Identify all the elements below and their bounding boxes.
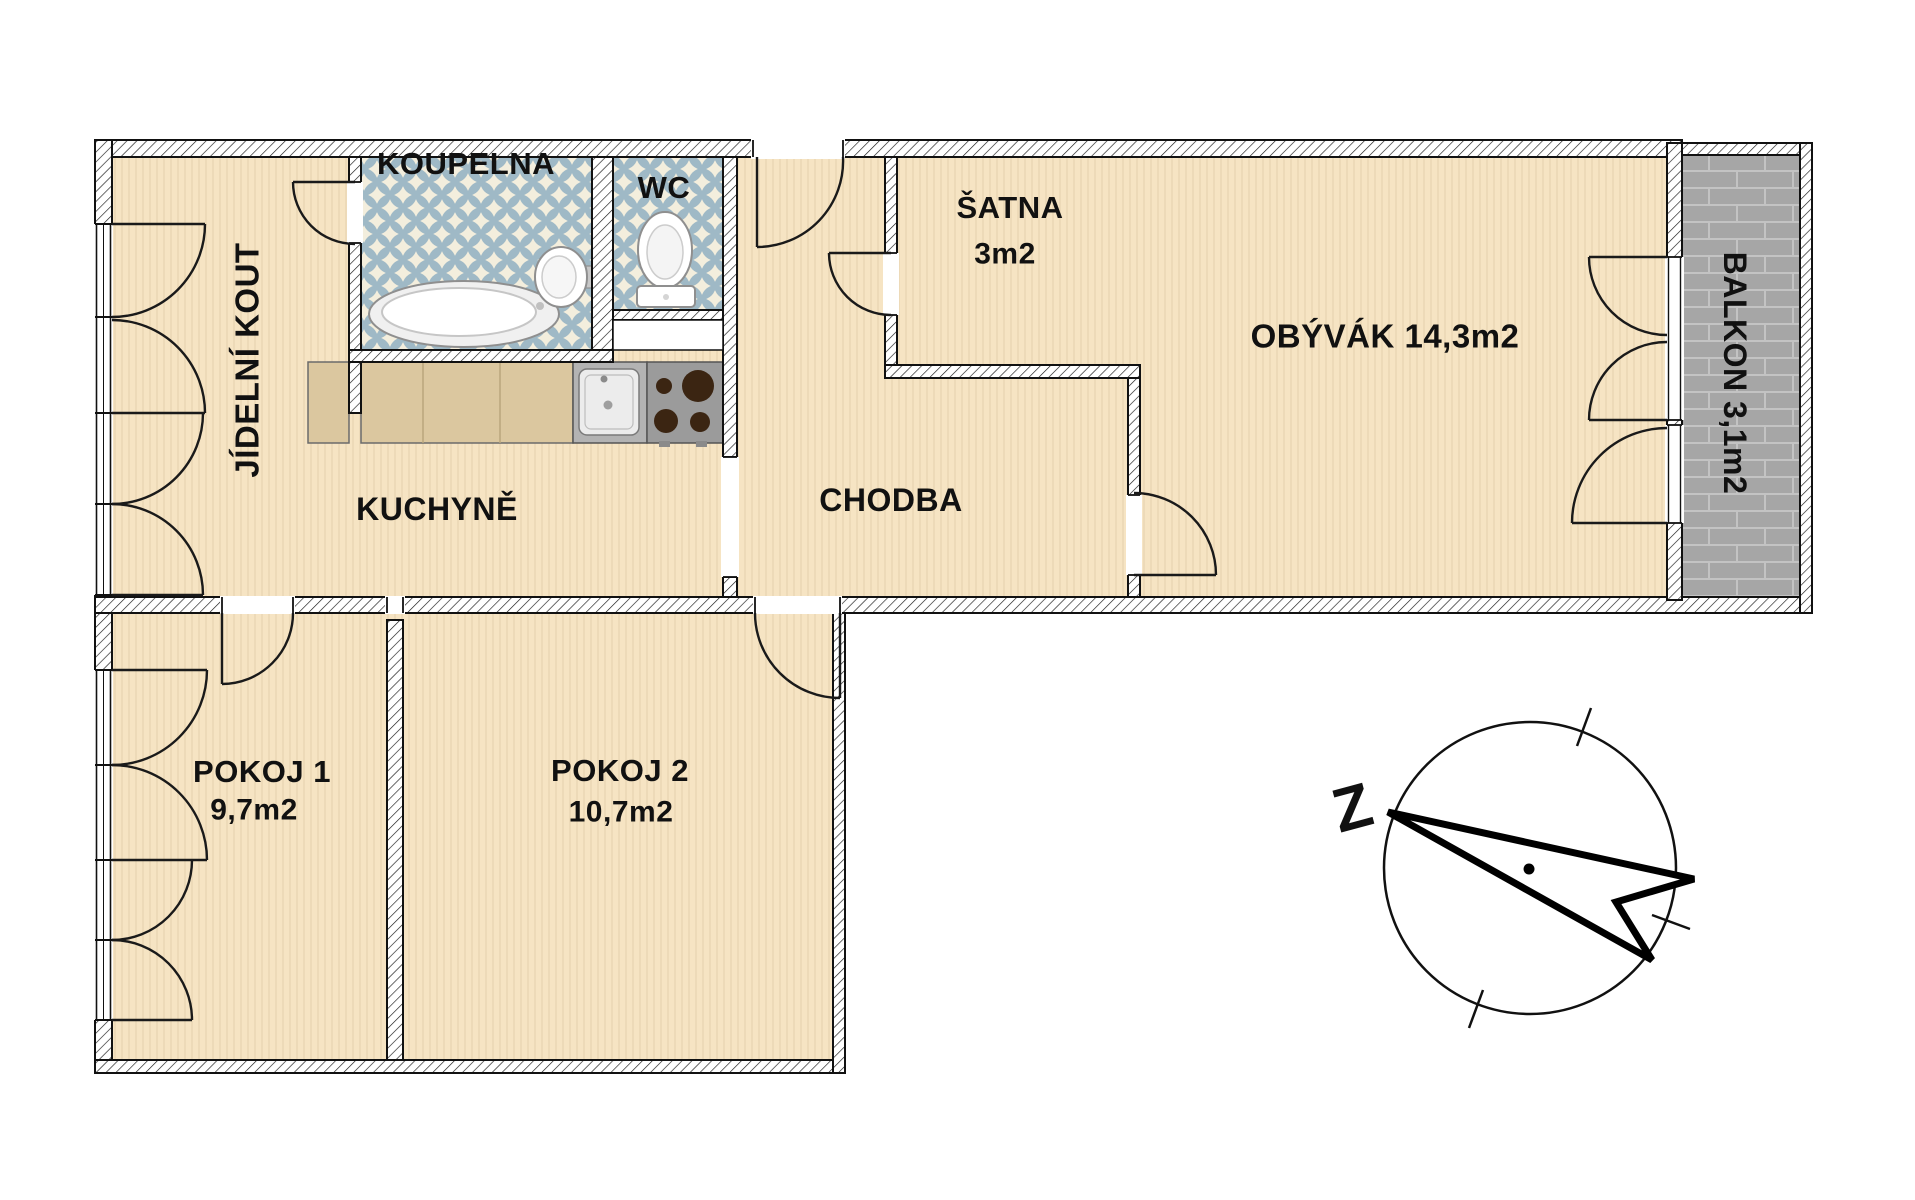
label-satna-area: 3m2 — [974, 238, 1036, 271]
label-pokoj2-area: 10,7m2 — [569, 796, 674, 829]
label-pokoj1-area: 9,7m2 — [210, 794, 298, 827]
label-pokoj2: POKOJ 2 — [551, 753, 689, 788]
label-wc: WC — [638, 170, 691, 205]
compass-needle — [1388, 812, 1694, 960]
kitchen-sink-icon — [573, 362, 647, 443]
label-balkon: BALKON 3,1m2 — [1717, 252, 1753, 495]
label-obyvak: OBÝVÁK 14,3m2 — [1251, 318, 1520, 355]
kitchen-counter — [308, 362, 723, 447]
label-pokoj1: POKOJ 1 — [193, 754, 331, 789]
floorplan-canvas: JÍDELNÍ KOUT KOUPELNA WC ŠATNA 3m2 OBÝVÁ… — [0, 0, 1915, 1200]
label-jidelni-kout: JÍDELNÍ KOUT — [229, 242, 266, 477]
bathtub-icon — [369, 281, 559, 347]
compass-icon: Z — [1325, 708, 1694, 1028]
floorplan-page: JÍDELNÍ KOUT KOUPELNA WC ŠATNA 3m2 OBÝVÁ… — [0, 0, 1915, 1200]
toilet-icon — [637, 212, 695, 307]
counter-main-icon — [361, 362, 573, 443]
compass-north-label: Z — [1325, 770, 1380, 847]
shaft-niche — [613, 320, 723, 350]
stove-icon — [647, 362, 723, 447]
label-koupelna: KOUPELNA — [377, 146, 555, 181]
counter-left-icon — [308, 362, 349, 443]
label-satna: ŠATNA — [957, 189, 1064, 225]
room-lower-band-floor — [112, 613, 833, 1060]
label-chodba: CHODBA — [819, 482, 962, 518]
label-kuchyne: KUCHYNĚ — [356, 491, 518, 527]
